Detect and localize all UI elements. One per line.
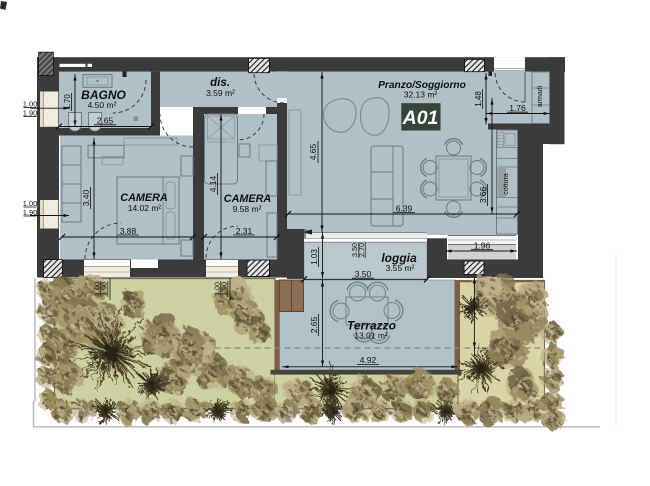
svg-text:1.76: 1.76 [509, 103, 526, 113]
svg-text:3.59 m²: 3.59 m² [206, 88, 235, 98]
svg-text:4.14: 4.14 [208, 175, 218, 192]
svg-text:2.65: 2.65 [309, 316, 319, 333]
svg-text:armadi: armadi [537, 85, 544, 107]
svg-text:cottura: cottura [503, 173, 510, 195]
svg-text:2.70: 2.70 [357, 243, 366, 257]
svg-text:A01: A01 [402, 107, 439, 129]
svg-text:3.50: 3.50 [355, 269, 372, 279]
svg-text:14.02 m²: 14.02 m² [128, 203, 162, 213]
svg-text:2.31: 2.31 [236, 226, 253, 236]
svg-text:3.40: 3.40 [81, 189, 91, 206]
svg-text:1.90: 1.90 [100, 282, 109, 296]
svg-text:2.65: 2.65 [97, 116, 114, 126]
svg-text:1.03: 1.03 [310, 249, 319, 265]
svg-text:1.96: 1.96 [474, 241, 491, 251]
svg-text:32.13 m²: 32.13 m² [404, 90, 438, 100]
svg-text:1.90: 1.90 [220, 282, 229, 296]
svg-text:2.00: 2.00 [463, 305, 472, 319]
svg-text:9.58 m²: 9.58 m² [233, 204, 262, 214]
svg-text:4.92: 4.92 [360, 355, 377, 365]
svg-text:1.48: 1.48 [474, 91, 483, 107]
svg-text:3.88: 3.88 [120, 226, 137, 236]
svg-text:6.39: 6.39 [396, 204, 413, 214]
svg-text:4.50 m²: 4.50 m² [88, 100, 117, 110]
svg-text:3.66: 3.66 [478, 186, 488, 203]
svg-text:4.65: 4.65 [308, 143, 318, 160]
svg-text:13.01 m²: 13.01 m² [354, 331, 388, 341]
svg-text:3.55 m²: 3.55 m² [386, 263, 415, 273]
